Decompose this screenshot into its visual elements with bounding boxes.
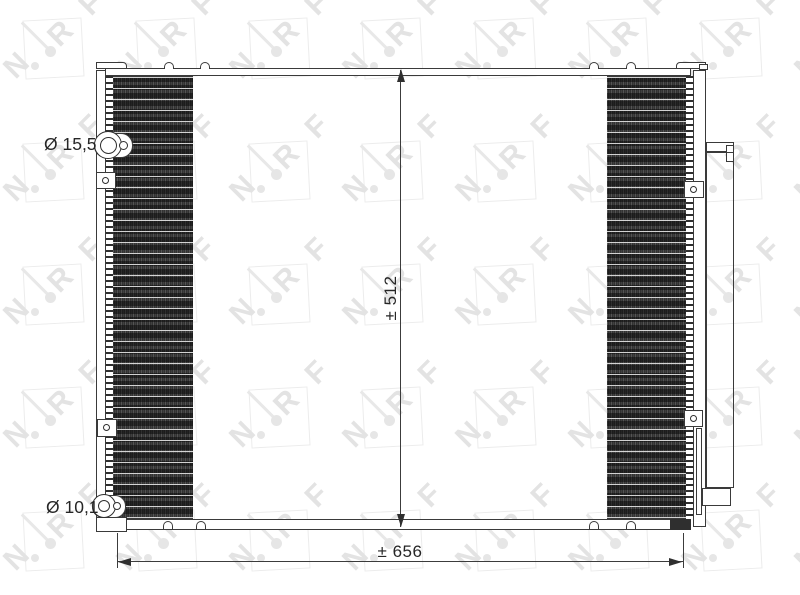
mounting-bracket-right-bottom [684, 410, 703, 427]
inlet-port-inner [100, 137, 117, 154]
dimension-arrow-right-icon [669, 558, 682, 566]
dimension-arrow-down-icon [397, 514, 405, 527]
nrf-watermark-tile: NRF [789, 481, 800, 595]
width-dimension-label: ± 656 [360, 542, 440, 562]
top-tab [626, 62, 636, 69]
mounting-bracket-right-top [684, 181, 704, 198]
bottom-tab [626, 521, 636, 529]
side-plate-foot [702, 488, 731, 506]
nrf-watermark-tile: NRF [337, 112, 450, 235]
nrf-watermark-tile: NRF [224, 358, 337, 481]
top-port-label: Ø 15,5 [44, 134, 97, 155]
bracket-hole-icon [690, 186, 697, 193]
nrf-watermark-tile: NRF [0, 358, 111, 481]
condenser-technical-drawing: NRFNRFNRFNRFNRFNRFNRFNRFNRFNRFNRFNRFNRFN… [0, 0, 800, 595]
right-fin-edge [686, 76, 693, 519]
nrf-watermark-tile: NRF [337, 358, 450, 481]
top-tab [200, 62, 210, 69]
nrf-watermark-tile: NRF [337, 0, 450, 112]
side-mounting-plate [706, 152, 734, 488]
nrf-watermark-tile: NRF [0, 0, 111, 112]
right-core-fins [607, 76, 686, 519]
bottom-port-label: Ø 10,1 [46, 497, 99, 518]
nrf-watermark-tile: NRF [224, 481, 337, 595]
bottom-tab [196, 521, 206, 529]
nrf-watermark-tile: NRF [450, 112, 563, 235]
top-tab [589, 62, 599, 69]
nrf-watermark-tile: NRF [224, 112, 337, 235]
mounting-bracket-left-top [96, 172, 116, 189]
bracket-hole-icon [103, 424, 110, 431]
top-tab [164, 62, 174, 69]
bottom-tab [589, 521, 599, 529]
nrf-watermark-tile: NRF [789, 112, 800, 235]
inlet-port-bolt-hole [119, 141, 128, 150]
nrf-watermark-tile: NRF [224, 235, 337, 358]
dimension-arrow-left-icon [118, 558, 131, 566]
nrf-watermark-tile: NRF [789, 0, 800, 112]
nrf-watermark-tile: NRF [789, 358, 800, 481]
nrf-watermark-tile: NRF [450, 358, 563, 481]
nrf-watermark-tile: NRF [450, 0, 563, 112]
nrf-watermark-tile: NRF [450, 481, 563, 595]
nrf-watermark-tile: NRF [450, 235, 563, 358]
bottom-left-foot [96, 517, 127, 532]
nrf-watermark-tile: NRF [0, 112, 111, 235]
outlet-port-inner [98, 500, 110, 512]
bracket-hole-icon [690, 415, 697, 422]
outlet-port-bolt-hole [113, 502, 121, 510]
bracket-hole-icon [102, 177, 109, 184]
dimension-arrow-up-icon [397, 69, 405, 82]
mounting-bracket-left-bottom [97, 419, 117, 437]
height-dimension-label: ± 512 [381, 258, 401, 338]
nrf-watermark-tile: NRF [224, 0, 337, 112]
nrf-watermark-tile: NRF [337, 481, 450, 595]
nrf-watermark-tile: NRF [0, 235, 111, 358]
width-extension-line-right [683, 533, 684, 568]
bottom-tab [163, 521, 173, 529]
top-lip-left [96, 62, 127, 69]
bottom-right-foot [670, 519, 691, 530]
nrf-watermark-tile: NRF [789, 235, 800, 358]
